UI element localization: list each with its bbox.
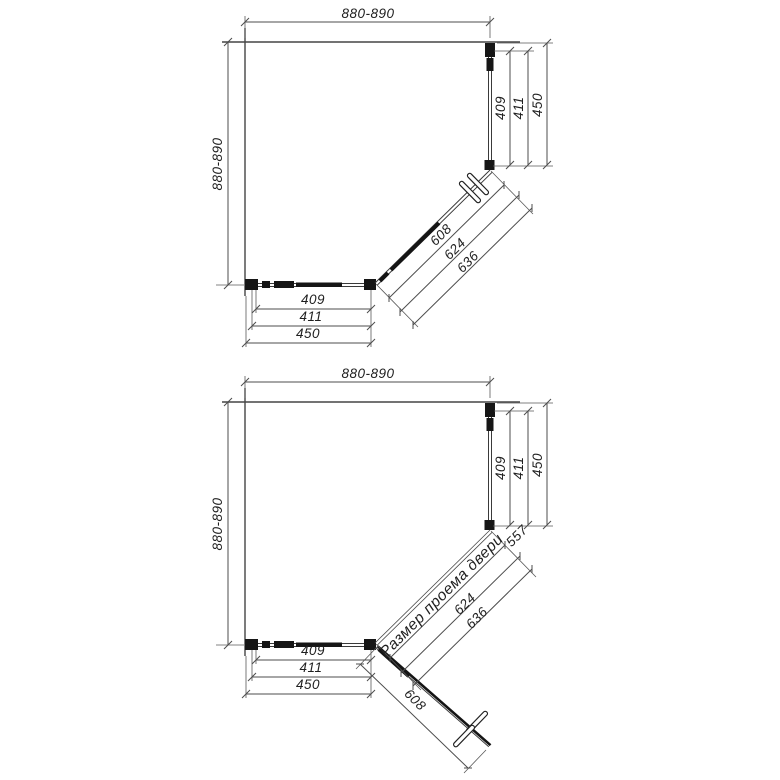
dim-label: 409 [493, 456, 508, 480]
panel-clamp [262, 281, 270, 288]
dims-bottom: 409 411 450 [242, 290, 375, 347]
dim-label: 411 [299, 660, 322, 675]
panel-seal [296, 283, 342, 288]
dim-label: 411 [511, 456, 526, 479]
dim-label: 409 [493, 96, 508, 120]
dim-label: 450 [296, 677, 320, 692]
wall-profile-left [245, 639, 258, 650]
dimension-line [224, 398, 232, 649]
panel-clamp [274, 281, 294, 288]
door-profile-dark [380, 223, 439, 281]
dim-open-door: 608 [356, 647, 486, 773]
hinge-joint-top [485, 520, 495, 530]
dims-bottom: 409 411 450 [242, 643, 375, 698]
door-handle-bar [453, 724, 476, 747]
dim-height: 880-890 [210, 398, 244, 649]
dim-width-label: 880-890 [341, 366, 394, 381]
panel-clamp [274, 641, 294, 648]
hinge-joint-top [485, 160, 495, 170]
wall-profile-top [485, 43, 495, 57]
wall-profile-left [245, 279, 258, 290]
dim-height-label: 880-890 [210, 497, 225, 550]
dim-label: 411 [511, 96, 526, 119]
corner-joint [364, 639, 376, 650]
dimension-line [389, 181, 504, 302]
panel-clamp [262, 641, 270, 648]
dim-label: 409 [301, 643, 325, 658]
dimension-line [224, 38, 232, 289]
opening-label: Размер проема двери [377, 531, 507, 661]
dim-label: 450 [530, 93, 545, 117]
diagram-door-closed: 880-890 880-890 409 411 450 608 624 636 [210, 6, 553, 347]
dim-width: 880-890 [241, 366, 494, 398]
dim-height-label: 880-890 [210, 137, 225, 190]
dims-diagonal: 608 624 636 [376, 171, 533, 329]
dim-height: 880-890 [210, 38, 244, 289]
dim-label: 411 [299, 309, 322, 324]
diagram-door-open: 880-890 880-890 409 411 450 Размер проем… [210, 366, 553, 773]
corner-joint [364, 279, 376, 290]
dim-width: 880-890 [241, 6, 494, 38]
dims-right-side: 409 411 450 [493, 39, 553, 169]
wall-profile-top [485, 403, 495, 417]
dim-label: 450 [296, 326, 320, 341]
dims-right-side: 409 411 450 [493, 399, 553, 529]
wall-profile-bracket [487, 418, 494, 431]
dim-label: 409 [301, 292, 325, 307]
dim-label: 450 [530, 453, 545, 477]
wall-profile-bracket [487, 58, 494, 71]
technical-drawing: 880-890 880-890 409 411 450 608 624 636 [0, 0, 780, 780]
dim-width-label: 880-890 [341, 6, 394, 21]
